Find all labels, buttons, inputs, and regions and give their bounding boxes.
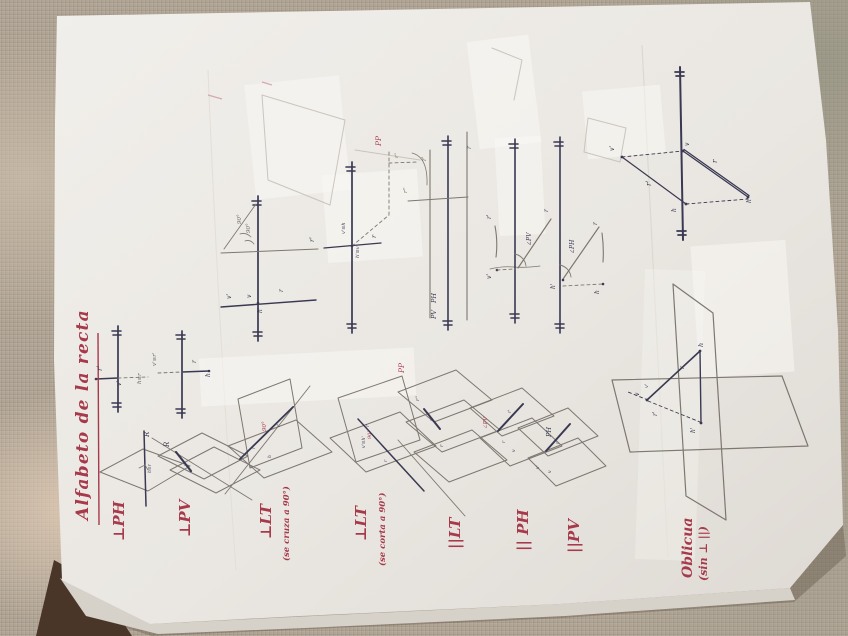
diagram-annotation: PV (430, 309, 438, 320)
diagram-annotation: h' (550, 283, 557, 289)
diagram-annotation: r' (365, 424, 371, 427)
diagram-annotation: v' (226, 294, 233, 299)
diagram-annotation: 90° (367, 430, 373, 439)
diagram-annotation: v' (486, 274, 493, 279)
row-sublabel-perp-lt-corta: (se corta a 90°) (377, 493, 388, 566)
row-label-oblicua: Oblicua (680, 518, 696, 578)
diagram-annotation: r' (276, 424, 282, 427)
row-label-par-lt: ||LT (446, 516, 464, 549)
diagram-annotation: v' (644, 384, 650, 388)
diagram-annotation: h (671, 208, 678, 212)
diagram-annotation: v' (535, 465, 541, 469)
title-underline (98, 333, 99, 525)
diagram-annotation: h≡r (147, 463, 153, 473)
diagram-annotation: PH (545, 427, 553, 438)
diagram-annotation: v'≡r' (152, 353, 158, 366)
diagram-annotation: ∠PH (569, 239, 576, 254)
row-label-perp-ph: ⊥PH (110, 500, 128, 541)
diagram-annotation: v'≡h (341, 222, 347, 234)
row-sublabel-oblicua: (sin ⊥ ||) (697, 526, 710, 581)
diagram-annotation: 90° (237, 214, 243, 224)
diagram-annotation: r'' (403, 187, 409, 193)
diagram-annotation: r' (507, 410, 513, 413)
diagram-annotation: R (163, 441, 171, 448)
photo-scene: Alfabeto de la recta ⊥PH ⊥PV ⊥LT (se cru… (0, 0, 848, 636)
diagram-annotation: v' (116, 381, 123, 386)
diagram-annotation: ∠PV (483, 416, 489, 429)
notebook-photo: Alfabeto de la recta ⊥PH ⊥PV ⊥LT (se cru… (0, 0, 848, 636)
diagram-annotation: r' (421, 156, 428, 161)
row-label-par-ph: || PH (514, 509, 532, 551)
diagram-annotation: PP (374, 135, 383, 147)
diagram-annotation: r'' (394, 153, 400, 158)
diagram-annotation: h' (690, 427, 697, 433)
row-label-par-pv: ||PV (565, 518, 583, 553)
page-title: Alfabeto de la recta (73, 309, 93, 522)
diagram-annotation: h (205, 373, 212, 377)
diagram-annotation: h' (257, 307, 264, 313)
diagram-annotation: h (594, 290, 601, 294)
diagram-annotation: r' (96, 366, 104, 371)
diagram-annotation: h'≡v (355, 246, 361, 258)
diagram-annotation: r' (486, 214, 493, 219)
row-label-perp-lt-cruza: ⊥LT (257, 502, 275, 539)
diagram-annotation: v' (609, 146, 616, 151)
diagram-annotation: 90° (262, 421, 268, 431)
diagram-annotation: r' (652, 411, 659, 416)
diagram-annotation: h (697, 343, 705, 347)
diagram-annotation: r' (429, 417, 435, 421)
diagram-annotation: v'≡h' (361, 436, 367, 448)
diagram-annotation: h (267, 455, 273, 458)
diagram-annotation: R (143, 431, 151, 438)
row-label-perp-pv: ⊥PV (176, 498, 194, 537)
diagram-annotation: h≡r (137, 373, 143, 384)
row-label-perp-lt-corta: ⊥LT (352, 504, 370, 541)
diagram-annotation: ∠PV (526, 232, 533, 246)
row-sublabel-perp-lt-cruza: (se cruza a 90°) (281, 486, 292, 561)
diagram-annotation: r'' (415, 396, 421, 401)
diagram-annotation: h' (746, 197, 753, 203)
diagram-annotation: PP (397, 362, 406, 374)
diagram-annotation: v' (183, 462, 189, 466)
diagram-annotation: 90° (246, 223, 252, 233)
diagram-annotation: r' (645, 181, 653, 186)
diagram-annotation: PH (430, 293, 438, 304)
diagram-annotation: r' (308, 237, 316, 242)
